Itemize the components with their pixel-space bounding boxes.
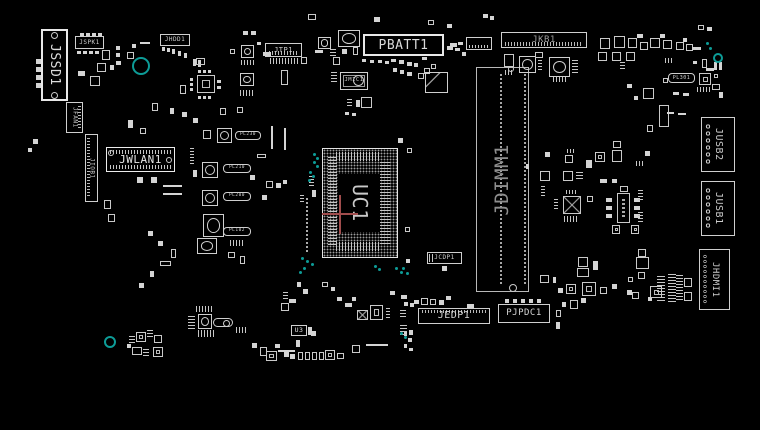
silkscreen-part [230, 240, 244, 246]
silkscreen-part [526, 164, 529, 169]
silkscreen-part [148, 231, 153, 236]
highlight-ring [104, 336, 116, 348]
silkscreen-part [612, 179, 617, 183]
silkscreen-part [217, 80, 221, 83]
silkscreen-part [190, 83, 193, 86]
silkscreen-part [220, 108, 226, 115]
silkscreen-part [95, 51, 99, 54]
silkscreen-part [467, 304, 474, 308]
silkscreen-part [521, 299, 525, 303]
silkscreen-part [284, 352, 289, 357]
silkscreen-part [638, 212, 643, 222]
jhdd1-label: JHDD1 [165, 37, 186, 43]
silkscreen-part [116, 61, 121, 65]
highlight-dot [404, 336, 407, 339]
silkscreen-part [305, 352, 310, 360]
jwlan1-component[interactable]: JWLAN1 [106, 147, 175, 172]
silkscreen-part [556, 322, 560, 329]
jhdmi1-label: JHDMI1 [710, 262, 719, 298]
silkscreen-part [612, 284, 617, 289]
silkscreen-part [466, 37, 492, 50]
highlight-dot [706, 42, 709, 45]
silkscreen-part [143, 349, 149, 358]
pl301-component[interactable]: PL301 [668, 73, 695, 83]
silkscreen-part [202, 162, 218, 178]
silkscreen-part [127, 52, 134, 59]
silkscreen-part [407, 148, 412, 153]
silkscreen-part [399, 60, 404, 64]
silkscreen-part [140, 42, 150, 44]
silkscreen-part [407, 72, 412, 76]
pl301-label: PL301 [673, 76, 691, 81]
silkscreen-part [333, 57, 340, 65]
silkscreen-part [270, 58, 300, 64]
silkscreen-part [137, 177, 143, 183]
silkscreen-part [336, 152, 380, 161]
highlight-dot [313, 153, 316, 156]
silkscreen-part [409, 330, 413, 335]
silkscreen-part [719, 62, 722, 70]
silkscreen-part [564, 216, 577, 222]
silkscreen-part [650, 38, 660, 48]
silkscreen-part [698, 25, 704, 30]
silkscreen-part [404, 344, 407, 348]
silkscreen-part [505, 299, 509, 303]
pl102-component[interactable]: PL102 [223, 227, 251, 236]
silkscreen-part [102, 50, 110, 60]
jspk1-label: JSPK1 [79, 40, 100, 46]
silkscreen-part [230, 49, 235, 54]
silkscreen-part [276, 183, 281, 188]
silkscreen-part [347, 99, 352, 108]
silkscreen-part [92, 33, 96, 36]
silkscreen-part [636, 161, 645, 166]
silkscreen-part [581, 298, 586, 303]
silkscreen-part [595, 152, 605, 162]
silkscreen-part [400, 70, 404, 74]
silkscreen-part [702, 59, 707, 68]
silkscreen-part [647, 125, 653, 132]
silkscreen-part [683, 38, 687, 42]
silkscreen-part [572, 60, 578, 74]
silkscreen-part [362, 59, 366, 62]
silkscreen-part [361, 97, 372, 108]
silkscreen-part [660, 34, 665, 38]
silkscreen-part [627, 84, 632, 88]
silkscreen-part [645, 151, 650, 156]
silkscreen-part [613, 141, 621, 148]
silkscreen-part [697, 87, 710, 92]
silkscreen-part [51, 92, 58, 99]
highlight-dot [402, 267, 405, 270]
jhdd1-component[interactable]: JHDD1 [160, 34, 190, 46]
silkscreen-part [578, 257, 588, 267]
silkscreen-part [170, 108, 174, 114]
silkscreen-part [236, 327, 246, 333]
silkscreen-part [283, 292, 288, 301]
highlight-dot [316, 157, 319, 160]
silkscreen-part [553, 277, 556, 283]
silkscreen-part [370, 60, 374, 63]
silkscreen-part [241, 60, 255, 65]
pl230-component[interactable]: PL230 [235, 131, 261, 140]
silkscreen-part [257, 154, 266, 158]
silkscreen-part [303, 289, 308, 294]
jssd1-component[interactable]: JSSD1 [41, 29, 68, 101]
silkscreen-part [240, 73, 254, 86]
silkscreen-part [638, 272, 645, 279]
silkscreen-part [171, 249, 176, 258]
silkscreen-part [139, 283, 144, 288]
silkscreen-part [676, 275, 683, 301]
silkscreen-part [36, 75, 41, 80]
silkscreen-part [714, 62, 717, 70]
silkscreen-part [36, 83, 41, 88]
silkscreen-part [296, 340, 300, 347]
silkscreen-part [600, 38, 610, 49]
silkscreen-part [598, 52, 607, 61]
pl200-label: PL200 [229, 194, 245, 199]
silkscreen-part [337, 297, 342, 301]
silkscreen-part [405, 227, 410, 232]
silkscreen-part [634, 96, 638, 100]
silkscreen-part [431, 64, 436, 69]
silkscreen-part [213, 318, 233, 327]
silkscreen-part [252, 343, 257, 348]
silkscreen-part [577, 268, 589, 277]
silkscreen-part [447, 46, 453, 50]
u3-component[interactable]: U3 [291, 325, 307, 336]
silkscreen-part [620, 186, 628, 192]
silkscreen-part [714, 74, 718, 78]
silkscreen-part [428, 20, 434, 25]
silkscreen-part [614, 36, 625, 48]
silkscreen-part [322, 282, 328, 287]
silkscreen-part [80, 33, 84, 36]
silkscreen-part [636, 257, 649, 269]
pbatt1-label: PBATT1 [379, 39, 429, 52]
silkscreen-part [446, 296, 451, 300]
jcdp1-label: JCDP1 [434, 255, 455, 261]
silkscreen-part [180, 85, 186, 94]
pl102-label: PL102 [229, 229, 245, 234]
silkscreen-part [668, 274, 676, 302]
highlight-dot [299, 271, 302, 274]
jkb1-component[interactable]: JKB1 [501, 32, 587, 48]
silkscreen-part [606, 214, 612, 218]
jfan1-component[interactable]: JFAN1 [66, 102, 83, 133]
silkscreen-part [36, 59, 41, 64]
silkscreen-part [628, 38, 637, 48]
silkscreen-part [319, 352, 324, 360]
silkscreen-part [643, 88, 654, 99]
highlight-dot [306, 260, 309, 263]
silkscreen-part [657, 276, 665, 302]
silkscreen-part [152, 103, 158, 111]
jkb1-label: JKB1 [532, 36, 556, 45]
silkscreen-part [217, 128, 232, 143]
silkscreen-part [391, 59, 396, 62]
silkscreen-part [556, 310, 561, 317]
silkscreen-part [345, 112, 349, 115]
silkscreen-part [203, 96, 206, 99]
silkscreen-part [504, 54, 514, 67]
jusb1-component[interactable]: JUSB1 [701, 181, 735, 236]
pjpdc1-label: PJPDC1 [506, 309, 542, 318]
highlight-dot [395, 267, 398, 270]
silkscreen-part [198, 70, 201, 73]
silkscreen-part [243, 31, 248, 35]
highlight-dot [303, 267, 306, 270]
silkscreen-part [462, 52, 466, 56]
silkscreen-part [606, 198, 612, 202]
pl230-label: PL230 [240, 133, 256, 138]
silkscreen-part [275, 344, 280, 348]
silkscreen-part [184, 53, 187, 58]
silkscreen-part [328, 157, 337, 247]
silkscreen-part [167, 48, 170, 52]
silkscreen-part [529, 299, 533, 303]
jdimm1-component[interactable]: JDIMM1 [476, 67, 529, 292]
silkscreen-part [626, 52, 635, 61]
silkscreen-part [409, 348, 413, 351]
highlight-ring [132, 57, 150, 75]
silkscreen-part [622, 199, 625, 218]
silkscreen-part [237, 107, 243, 113]
silkscreen-part [208, 70, 211, 73]
silkscreen-part [483, 14, 488, 18]
silkscreen-part [308, 14, 316, 20]
silkscreen-part [284, 128, 286, 150]
silkscreen-part [127, 344, 131, 348]
highlight-dot [309, 171, 312, 174]
silkscreen-part [352, 345, 360, 353]
silkscreen-part [132, 347, 142, 355]
silkscreen-part [631, 225, 639, 234]
silkscreen-part [77, 51, 81, 54]
silkscreen-part [208, 96, 211, 99]
silkscreen-part [325, 350, 335, 360]
jusb2-component[interactable]: JUSB2 [701, 117, 735, 172]
silkscreen-part [197, 238, 217, 254]
silkscreen-part [719, 92, 723, 98]
silkscreen-part [535, 52, 543, 58]
silkscreen-part [153, 347, 163, 357]
silkscreen-part [166, 157, 172, 163]
highlight-ring [713, 53, 723, 63]
silkscreen-part [203, 214, 224, 237]
silkscreen-part [83, 51, 87, 54]
silkscreen-part [298, 352, 303, 360]
highlight-dot [312, 175, 315, 178]
silkscreen-part [331, 287, 335, 291]
silkscreen-part [425, 72, 448, 93]
silkscreen-part [593, 261, 598, 270]
silkscreen-part [414, 300, 419, 304]
silkscreen-part [116, 46, 120, 50]
silkscreen-part [136, 332, 146, 342]
silkscreen-part [188, 316, 195, 330]
silkscreen-part [281, 70, 288, 85]
silkscreen-part [278, 350, 295, 352]
silkscreen-part [638, 249, 646, 257]
jhdmi1-component[interactable]: JHDMI1 [699, 249, 730, 310]
silkscreen-part [612, 150, 622, 162]
silkscreen-part [398, 138, 403, 143]
pcb-board-canvas[interactable]: JSSD1JSPK1JHDD1JTP1PBATT1JMIC1JKB1JFAN1J… [0, 0, 760, 430]
silkscreen-part [663, 40, 672, 49]
silkscreen-part [684, 292, 692, 301]
silkscreen-part [160, 261, 171, 266]
jmic1-label: JMIC1 [344, 78, 363, 84]
silkscreen-part [519, 56, 536, 73]
silkscreen-part [586, 160, 592, 168]
silkscreen-part [331, 72, 337, 82]
silkscreen-part [541, 186, 545, 197]
silkscreen-part [458, 42, 463, 45]
jspk1-component[interactable]: JSPK1 [75, 36, 104, 49]
silkscreen-part [150, 271, 154, 277]
silkscreen-part [251, 31, 256, 35]
silkscreen-part [128, 120, 133, 128]
silkscreen-part [90, 76, 100, 86]
silkscreen-part [263, 52, 271, 56]
silkscreen-part [637, 34, 643, 38]
silkscreen-part [51, 32, 58, 39]
silkscreen-part [330, 49, 336, 56]
silkscreen-part [108, 214, 115, 222]
silkscreen-part [558, 288, 563, 293]
silkscreen-part [684, 278, 692, 287]
silkscreen-part [193, 118, 198, 123]
silkscreen-part [422, 57, 427, 60]
highlight-dot [313, 161, 316, 164]
pl210-component[interactable]: PL210 [223, 164, 251, 173]
silkscreen-part [659, 105, 669, 127]
pl200-component[interactable]: PL200 [223, 192, 251, 201]
jedp1-label: JEDP1 [438, 311, 471, 321]
silkscreen-part [400, 310, 406, 319]
silkscreen-part [172, 49, 175, 54]
silkscreen-part [570, 300, 578, 309]
silkscreen-part [250, 175, 255, 180]
silkscreen-part [266, 181, 273, 188]
silkscreen-part [312, 190, 316, 197]
silkscreen-part [620, 62, 625, 70]
silkscreen-part [86, 33, 90, 36]
highlight-dot [406, 272, 409, 275]
silkscreen-part [692, 47, 701, 50]
silkscreen-part [301, 57, 307, 64]
silkscreen-part [628, 277, 633, 282]
silkscreen-part [78, 71, 85, 76]
silkscreen-part [665, 58, 674, 63]
silkscreen-part [196, 306, 214, 312]
jiob1-component[interactable]: JIOB1 [85, 134, 98, 202]
jwlan1-label: JWLAN1 [119, 154, 162, 165]
silkscreen-part [163, 185, 182, 187]
silkscreen-part [290, 354, 295, 359]
silkscreen-part [357, 310, 368, 320]
silkscreen-part [338, 30, 360, 47]
silkscreen-part [108, 150, 114, 156]
silkscreen-part [289, 299, 296, 303]
selection-crosshair-vertical [339, 195, 341, 234]
jssd1-label: JSSD1 [48, 44, 61, 86]
silkscreen-part [576, 172, 583, 181]
silkscreen-part [600, 179, 607, 183]
pl210-label: PL210 [229, 166, 245, 171]
silkscreen-part [193, 170, 197, 177]
silkscreen-part [28, 148, 32, 152]
silkscreen-part [342, 49, 347, 54]
silkscreen-part [712, 84, 720, 90]
silkscreen-part [404, 302, 408, 306]
pjpdc1-component[interactable]: PJPDC1 [498, 304, 550, 323]
silkscreen-part [311, 331, 316, 336]
silkscreen-part [706, 68, 714, 71]
silkscreen-part [430, 299, 436, 305]
silkscreen-part [378, 60, 382, 63]
silkscreen-part [508, 66, 514, 72]
silkscreen-part [565, 155, 573, 163]
jedp1-component[interactable]: JEDP1 [418, 308, 490, 324]
silkscreen-part [240, 256, 245, 264]
silkscreen-part [538, 60, 542, 72]
silkscreen-part [116, 53, 120, 57]
silkscreen-part [240, 90, 255, 96]
silkscreen-part [271, 126, 273, 149]
silkscreen-part [306, 198, 308, 254]
silkscreen-part [163, 193, 182, 195]
silkscreen-part [315, 50, 323, 53]
highlight-dot [308, 179, 311, 182]
jusb1-label: JUSB1 [713, 192, 723, 225]
silkscreen-part [407, 62, 412, 66]
silkscreen-part [414, 63, 418, 67]
silkscreen-part [356, 100, 360, 107]
silkscreen-part [587, 196, 593, 202]
highlight-dot [311, 263, 314, 266]
pbatt1-component[interactable]: PBATT1 [363, 34, 444, 56]
jdimm1-label: JDIMM1 [493, 144, 512, 216]
silkscreen-part [439, 300, 444, 305]
jiob1-label: JIOB1 [89, 158, 95, 179]
jtp1-label: JTP1 [274, 47, 293, 54]
silkscreen-part [676, 42, 684, 50]
silkscreen-part [678, 113, 686, 115]
silkscreen-part [147, 330, 153, 339]
silkscreen-part [563, 196, 581, 214]
silkscreen-part [98, 33, 102, 36]
silkscreen-part [509, 284, 517, 292]
silkscreen-part [406, 259, 410, 263]
silkscreen-part [582, 282, 596, 296]
silkscreen-part [190, 148, 194, 164]
silkscreen-part [312, 352, 317, 360]
silkscreen-part [638, 190, 643, 201]
silkscreen-part [386, 308, 390, 318]
silkscreen-part [563, 171, 573, 181]
silkscreen-part [198, 330, 215, 337]
silkscreen-part [699, 73, 711, 85]
silkscreen-part [566, 190, 576, 194]
silkscreen-part [353, 47, 358, 55]
silkscreen-part [632, 292, 639, 299]
silkscreen-part [300, 195, 304, 202]
silkscreen-part [673, 92, 679, 95]
silkscreen-part [198, 314, 212, 329]
